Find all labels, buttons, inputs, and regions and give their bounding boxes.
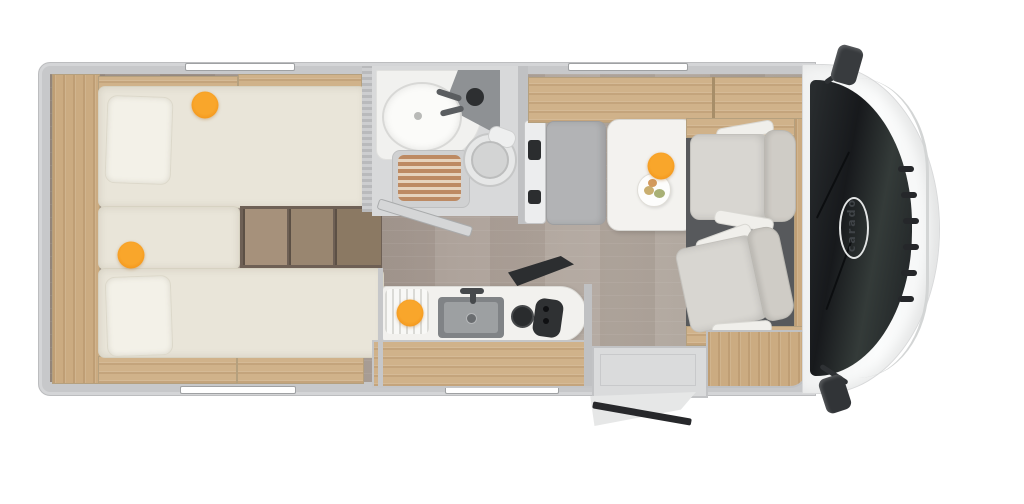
overhead-cabinet-strip: [528, 77, 808, 123]
grille-slat: [903, 244, 919, 250]
hob-knob: [543, 318, 549, 324]
grille-slat: [901, 270, 917, 276]
kitchen-sink-drain: [466, 313, 477, 324]
tv-panel: [524, 120, 546, 224]
bed-foot-shelf: [237, 356, 364, 384]
passenger-seat: [690, 134, 770, 220]
hotspot-rear-bed-top[interactable]: [192, 92, 219, 119]
bed-step: [289, 209, 333, 265]
bed-step: [335, 209, 381, 265]
bed-step: [243, 209, 287, 265]
shower-wood-grate: [398, 155, 461, 201]
toilet-bowl: [471, 141, 509, 179]
window-marker: [180, 386, 296, 394]
bathroom-wall-left: [362, 66, 372, 212]
food-item: [648, 179, 657, 187]
cabinet-divider: [712, 77, 715, 121]
grille-slat: [898, 166, 914, 172]
pillow: [105, 275, 174, 357]
grille-slat: [898, 296, 914, 302]
sideboard-cabinet: [706, 330, 808, 388]
sink-drain: [414, 112, 422, 120]
tv-mount-bracket: [528, 140, 541, 160]
pillow: [104, 95, 173, 185]
dinette-bench: [546, 121, 606, 225]
hotspot-kitchen[interactable]: [397, 300, 424, 327]
kitchen-faucet-spout: [470, 290, 476, 304]
food-item: [644, 186, 654, 195]
vanity-basin-hole: [466, 88, 484, 106]
carado-logo-text: carado: [840, 190, 864, 260]
hob-burner: [511, 305, 534, 328]
passenger-seat-back: [764, 130, 796, 222]
bed-foot-shelf: [98, 356, 237, 384]
hotspot-rear-bed-bottom[interactable]: [118, 242, 145, 269]
food-item: [654, 189, 665, 198]
tv-mount-bracket: [528, 190, 541, 204]
grille-slat: [903, 218, 919, 224]
window-marker: [568, 63, 688, 71]
entry-step: [600, 354, 696, 386]
motorhome-floorplan: carado: [0, 0, 1024, 504]
window-marker: [185, 63, 295, 71]
hotspot-dinette-table[interactable]: [648, 153, 675, 180]
kitchen-cabinet-front: [372, 340, 592, 388]
hob-knob: [543, 306, 549, 312]
kitchen-wall-left: [378, 268, 383, 386]
kitchen-wall-right: [584, 284, 592, 386]
grille-slat: [901, 192, 917, 198]
rear-wardrobe: [52, 74, 100, 384]
